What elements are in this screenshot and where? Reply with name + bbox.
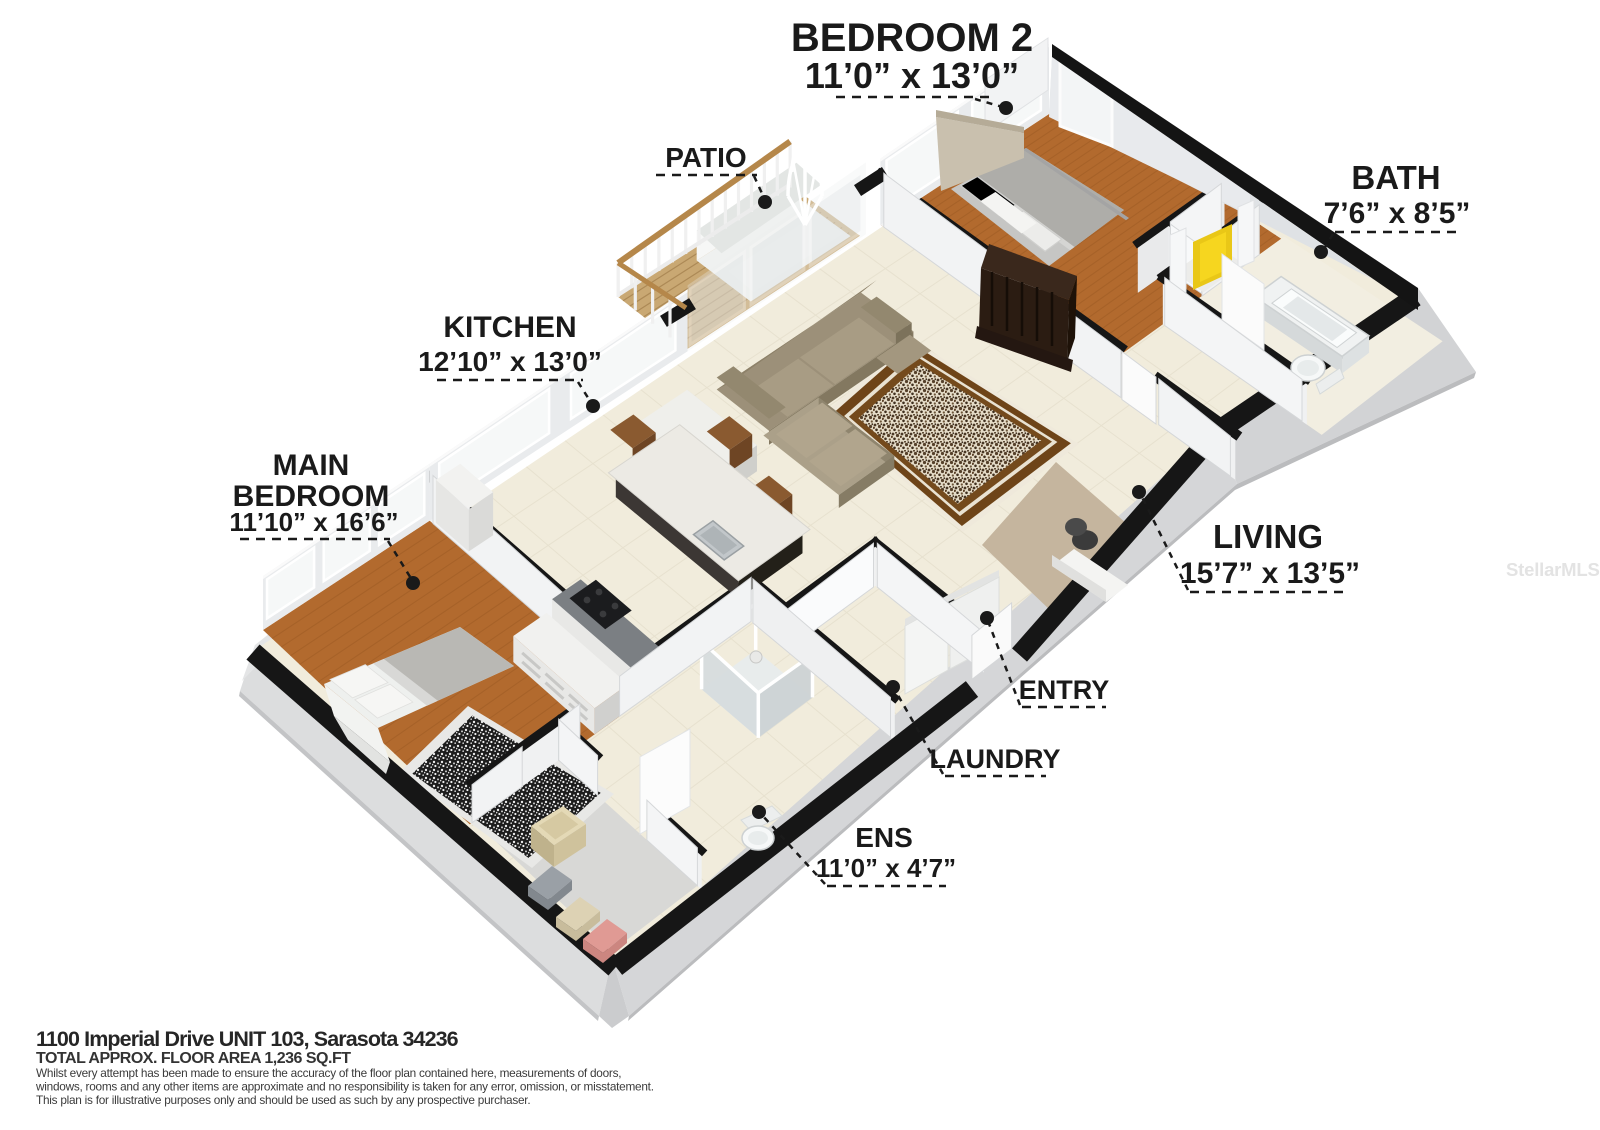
svg-text:12’10” x 13’0”: 12’10” x 13’0”: [418, 346, 602, 377]
svg-text:15’7” x 13’5”: 15’7” x 13’5”: [1180, 557, 1360, 590]
svg-text:StellarMLS: StellarMLS: [1506, 559, 1600, 580]
svg-text:11’0” x 4’7”: 11’0” x 4’7”: [816, 853, 956, 883]
svg-text:This plan is for illustrative: This plan is for illustrative purposes o…: [36, 1093, 530, 1107]
svg-text:LIVING: LIVING: [1213, 518, 1323, 555]
svg-text:PATIO: PATIO: [665, 142, 746, 173]
svg-text:Whilst every attempt has been: Whilst every attempt has been made to en…: [36, 1066, 621, 1080]
svg-text:1100 Imperial Drive UNIT 103,: 1100 Imperial Drive UNIT 103, Sarasota 3…: [36, 1027, 459, 1051]
svg-text:ENTRY: ENTRY: [1019, 675, 1110, 705]
svg-text:windows, rooms and any other i: windows, rooms and any other items are a…: [35, 1080, 654, 1094]
svg-text:11’10” x 16’6”: 11’10” x 16’6”: [229, 507, 398, 537]
svg-text:7’6” x 8’5”: 7’6” x 8’5”: [1324, 197, 1471, 230]
svg-text:MAIN: MAIN: [273, 449, 350, 482]
svg-text:LAUNDRY: LAUNDRY: [930, 744, 1061, 774]
svg-text:11’0” x 13’0”: 11’0” x 13’0”: [805, 55, 1019, 96]
svg-text:TOTAL APPROX. FLOOR AREA 1,236: TOTAL APPROX. FLOOR AREA 1,236 SQ.FT: [36, 1050, 351, 1067]
svg-text:ENS: ENS: [855, 822, 913, 853]
svg-text:BATH: BATH: [1351, 159, 1440, 196]
svg-text:KITCHEN: KITCHEN: [443, 311, 576, 344]
svg-text:BEDROOM 2: BEDROOM 2: [791, 16, 1033, 60]
